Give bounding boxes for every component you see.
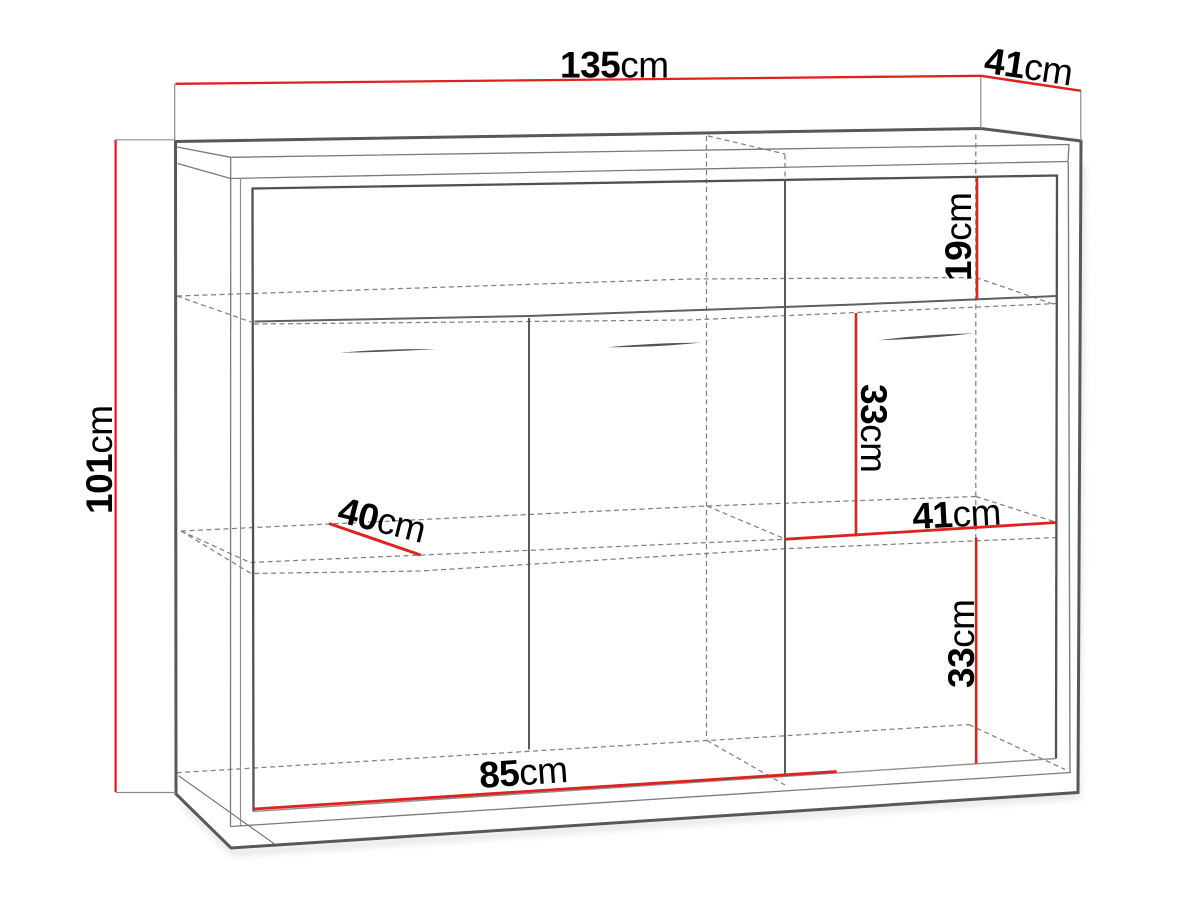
svg-text:41cm: 41cm	[911, 491, 1002, 537]
svg-text:85cm: 85cm	[478, 749, 569, 796]
svg-text:19cm: 19cm	[938, 193, 979, 281]
svg-text:101cm: 101cm	[79, 405, 120, 514]
svg-text:135cm: 135cm	[560, 45, 669, 86]
svg-text:33cm: 33cm	[941, 600, 982, 688]
svg-text:33cm: 33cm	[853, 384, 894, 472]
